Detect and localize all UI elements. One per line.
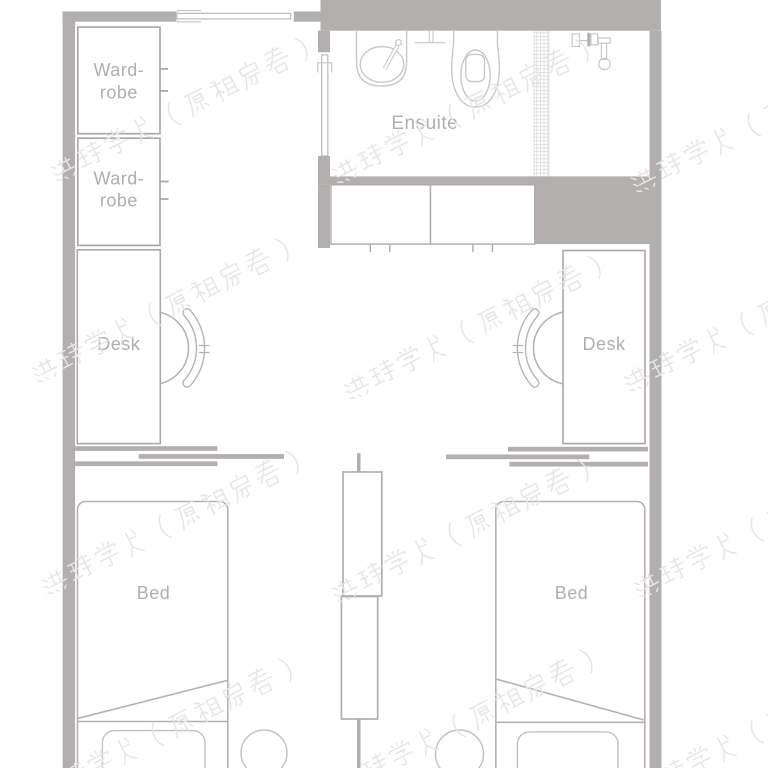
svg-text:Ward-: Ward- xyxy=(93,169,144,189)
svg-text:Ensuite: Ensuite xyxy=(391,113,458,134)
svg-text:Bed: Bed xyxy=(555,583,589,603)
svg-text:Ward-: Ward- xyxy=(93,60,144,80)
svg-text:robe: robe xyxy=(100,83,138,103)
svg-text:robe: robe xyxy=(100,191,138,211)
svg-text:Desk: Desk xyxy=(97,334,141,354)
svg-text:Bed: Bed xyxy=(137,583,171,603)
svg-text:Desk: Desk xyxy=(582,334,626,354)
